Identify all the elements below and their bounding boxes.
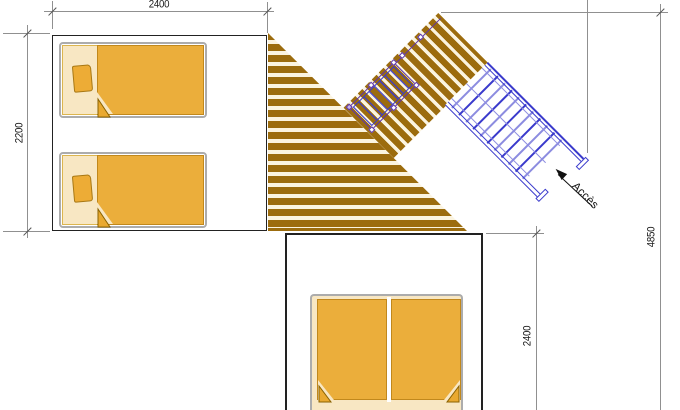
railing-post — [390, 104, 397, 111]
single-bed-2 — [59, 152, 207, 228]
dim-label-top: 2400 — [149, 0, 169, 11]
blanket-fold — [315, 378, 337, 404]
railing-post — [368, 126, 375, 133]
floor-plan: 2400 2200 4850 2400 Accès — [0, 0, 680, 410]
dim-label-lower-right: 2400 — [523, 326, 534, 346]
railing-post — [412, 82, 419, 89]
pillow — [72, 174, 93, 203]
dim-label-right-total: 4850 — [647, 227, 658, 247]
pillow — [72, 64, 93, 93]
extension-line — [441, 12, 668, 13]
double-bed — [310, 294, 463, 410]
blanket-fold — [91, 200, 115, 230]
extension-line — [267, 2, 268, 33]
blanket-fold — [91, 90, 115, 120]
railing-post — [390, 59, 397, 66]
extension-line — [587, 0, 588, 153]
dimension-line-lower-right — [536, 226, 537, 410]
blanket-gap — [387, 297, 391, 402]
gangway-railing-inner — [352, 66, 412, 126]
access-label: Accès — [569, 181, 600, 212]
dimension-line-top — [44, 11, 274, 12]
stair-rail-ne — [487, 62, 586, 161]
single-bed-1 — [59, 42, 207, 118]
dim-label-left: 2200 — [15, 123, 26, 143]
dimension-line-left — [27, 25, 28, 238]
dimension-line-right — [660, 4, 661, 410]
gangway-railing — [348, 62, 417, 131]
extension-line — [52, 1, 53, 29]
blanket-fold — [441, 378, 463, 404]
railing-post — [345, 104, 352, 111]
